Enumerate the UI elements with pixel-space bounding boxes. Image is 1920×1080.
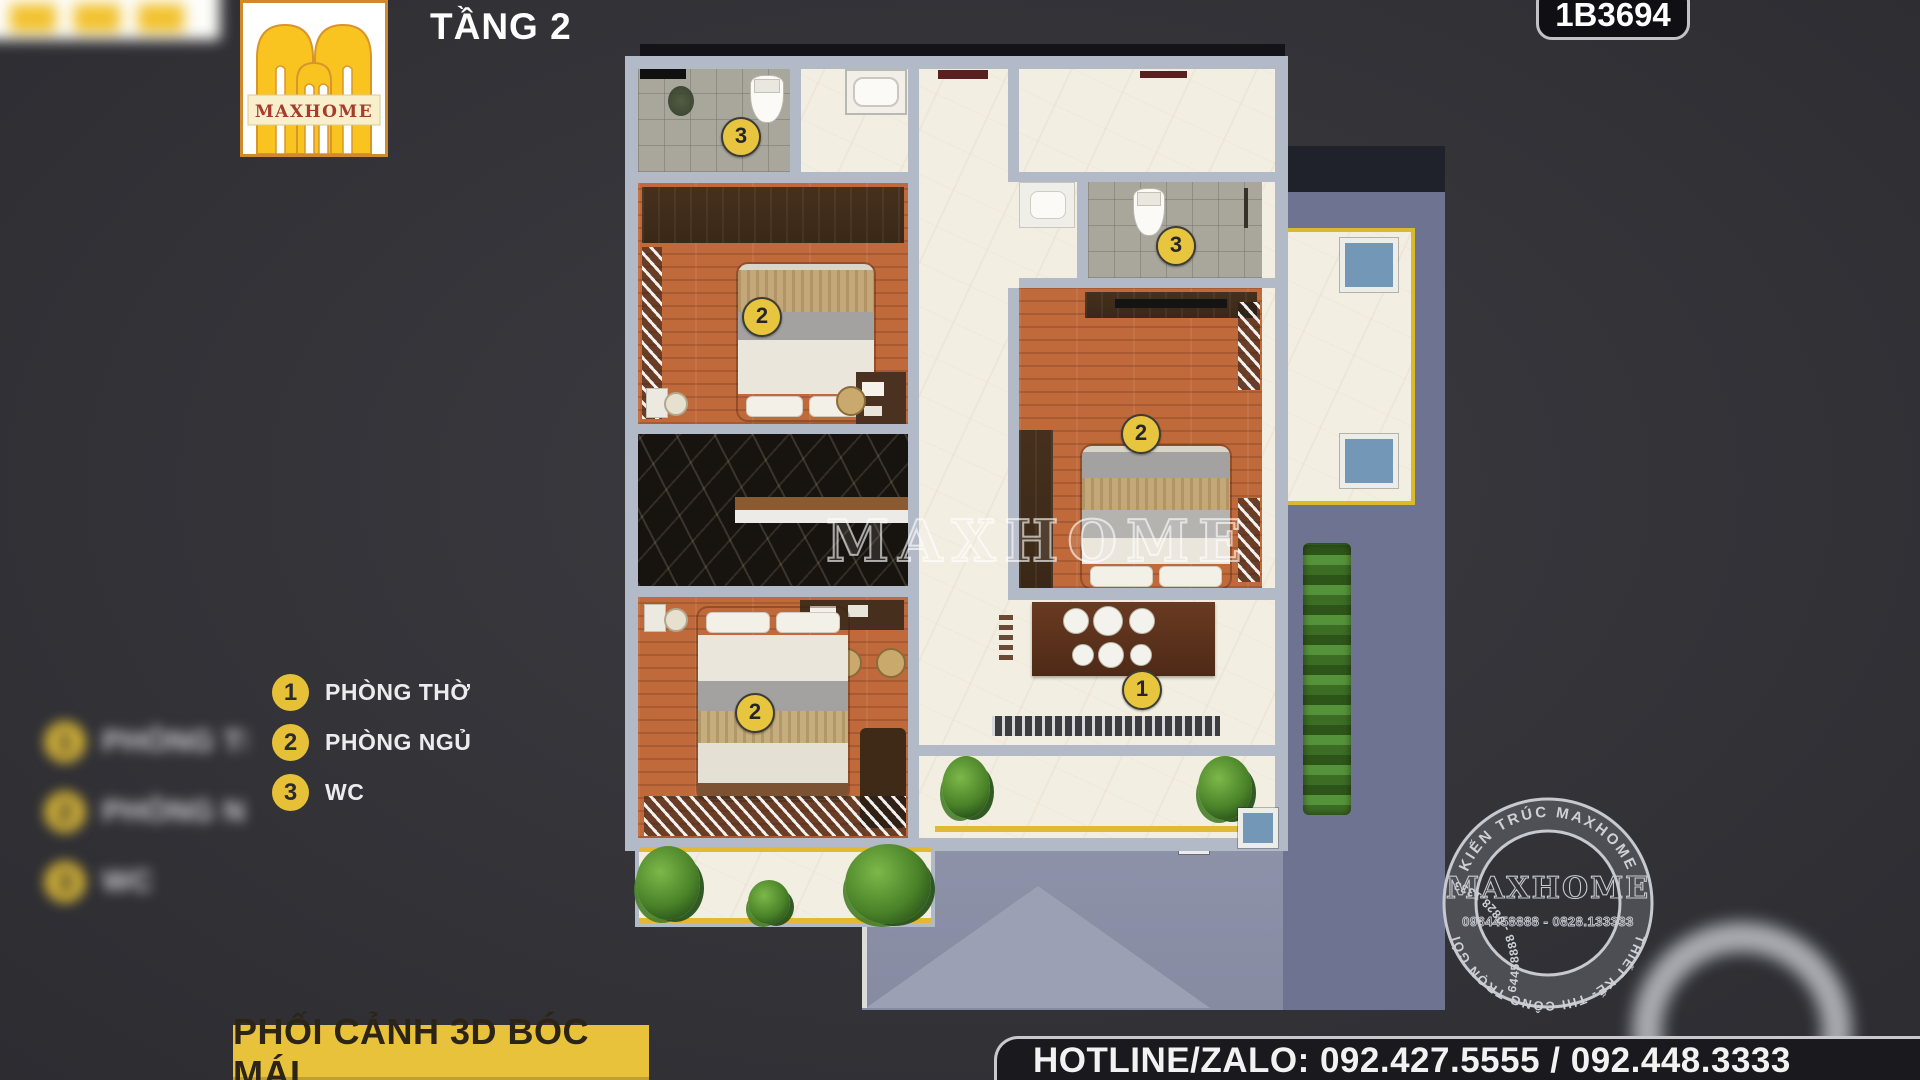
front-balcony-plant-left — [636, 846, 700, 920]
room-marker-bedroom-bottom-left: 2 — [735, 693, 775, 733]
wall-h-top-right — [1008, 172, 1275, 182]
rear-balcony-trim — [935, 826, 1270, 832]
rear-balcony-plant-left — [942, 756, 990, 818]
legend-label-1: PHÒNG THỜ — [325, 679, 471, 706]
front-balcony-plant-right — [845, 844, 931, 924]
bathroom-tl-shelf — [640, 69, 686, 79]
bedroom-ml-chair — [836, 386, 866, 416]
worship-rug — [992, 716, 1220, 736]
blurred-logo-remnant — [0, 0, 220, 40]
wall-bath-tl-right — [790, 69, 801, 172]
wall-h-bath-tl — [638, 172, 919, 183]
altar-table — [1032, 602, 1215, 676]
legend-badge-2: 2 — [272, 724, 309, 761]
plan-code-badge: 1B3694 — [1536, 0, 1690, 40]
bathroom-tl-plant — [668, 86, 694, 116]
wall-h-bath-tr — [1019, 278, 1275, 288]
wall-h-void-bottom — [638, 586, 919, 597]
plan-code: 1B3694 — [1555, 0, 1671, 37]
skylight-bottom — [1340, 434, 1398, 488]
stair-rail — [999, 612, 1013, 660]
maxhome-logo-text: MAXHOME — [255, 102, 373, 122]
company-stamp: KIẾN TRÚC MAXHOME THIẾT KẾ- THI CÔNG TRỌ… — [1437, 792, 1659, 1014]
room-marker-worship: 1 — [1122, 670, 1162, 710]
bedroom-r-closet-rail-1 — [1238, 302, 1260, 390]
hotline-bar: HOTLINE/ZALO: 092.427.5555 / 092.448.333… — [994, 1036, 1920, 1080]
annex-shadow — [1283, 146, 1445, 194]
maxhome-logo-mark: MAXHOME — [243, 3, 385, 154]
room-marker-bedroom-right: 2 — [1121, 414, 1161, 454]
bedroom-bl-nightstand — [644, 604, 666, 632]
poster-canvas: 1 PHÒNG THỜ 2 PHÒNG NGỦ 3 WC — [0, 0, 1920, 1080]
bedroom-r-tv — [1115, 299, 1227, 308]
stamp-center-name: MAXHOME — [1446, 871, 1650, 906]
maxhome-logo: MAXHOME — [240, 0, 388, 157]
wall-h-worship — [919, 745, 1275, 756]
hall-vent-left — [938, 70, 988, 79]
front-balcony-plant-mid — [748, 880, 790, 924]
wall-h-bedroom-r — [1008, 588, 1275, 600]
rear-balcony-skylight — [1238, 808, 1278, 848]
hotline-text: HOTLINE/ZALO: 092.427.5555 / 092.448.333… — [1033, 1041, 1791, 1080]
wall-hall-right-top — [1008, 69, 1019, 172]
vanity-top-right — [1019, 182, 1075, 228]
plan-top-shadow — [640, 44, 1285, 56]
room-marker-wc-top-left: 3 — [721, 117, 761, 157]
shower-top-right — [1244, 188, 1248, 228]
legend-item-worship: 1 PHÒNG THỜ — [272, 672, 471, 712]
view-title-banner: PHỐI CẢNH 3D BÓC MÁI — [233, 1025, 649, 1080]
view-title: PHỐI CẢNH 3D BÓC MÁI — [233, 1011, 649, 1080]
legend-item-wc: 3 WC — [272, 772, 364, 812]
room-marker-bedroom-mid-left: 2 — [742, 297, 782, 337]
wall-hall-left — [908, 69, 919, 838]
wall-h-void-top — [638, 424, 919, 434]
bedroom-bl-chair-2 — [876, 648, 906, 678]
legend-label-3: WC — [325, 779, 364, 806]
roof-hedge — [1303, 543, 1351, 815]
laundry-tub — [845, 69, 907, 115]
bedroom-ml-wardrobe — [642, 187, 904, 243]
floor-title: TẦNG 2 — [430, 6, 572, 48]
wall-bath-tr-left — [1077, 182, 1088, 278]
bedroom-bl-closet-rail — [644, 796, 906, 836]
bedroom-ml-clock — [664, 392, 688, 416]
legend-label-2: PHÒNG NGỦ — [325, 729, 471, 756]
center-watermark: MAXHOME — [826, 508, 1251, 575]
bedroom-bl-clock — [664, 608, 688, 632]
hall-vent-right — [1140, 71, 1187, 78]
room-marker-wc-top-right: 3 — [1156, 226, 1196, 266]
blurred-legend: 1 PHÒNG THỜ 2 PHÒNG NGỦ 3 WC — [38, 718, 246, 948]
skylight-top — [1340, 238, 1398, 292]
legend-badge-3: 3 — [272, 774, 309, 811]
legend-badge-1: 1 — [272, 674, 309, 711]
stamp-center-phone: 0964458888 - 0828.133333 — [1462, 914, 1634, 929]
legend-item-bedroom: 2 PHÒNG NGỦ — [272, 722, 471, 762]
